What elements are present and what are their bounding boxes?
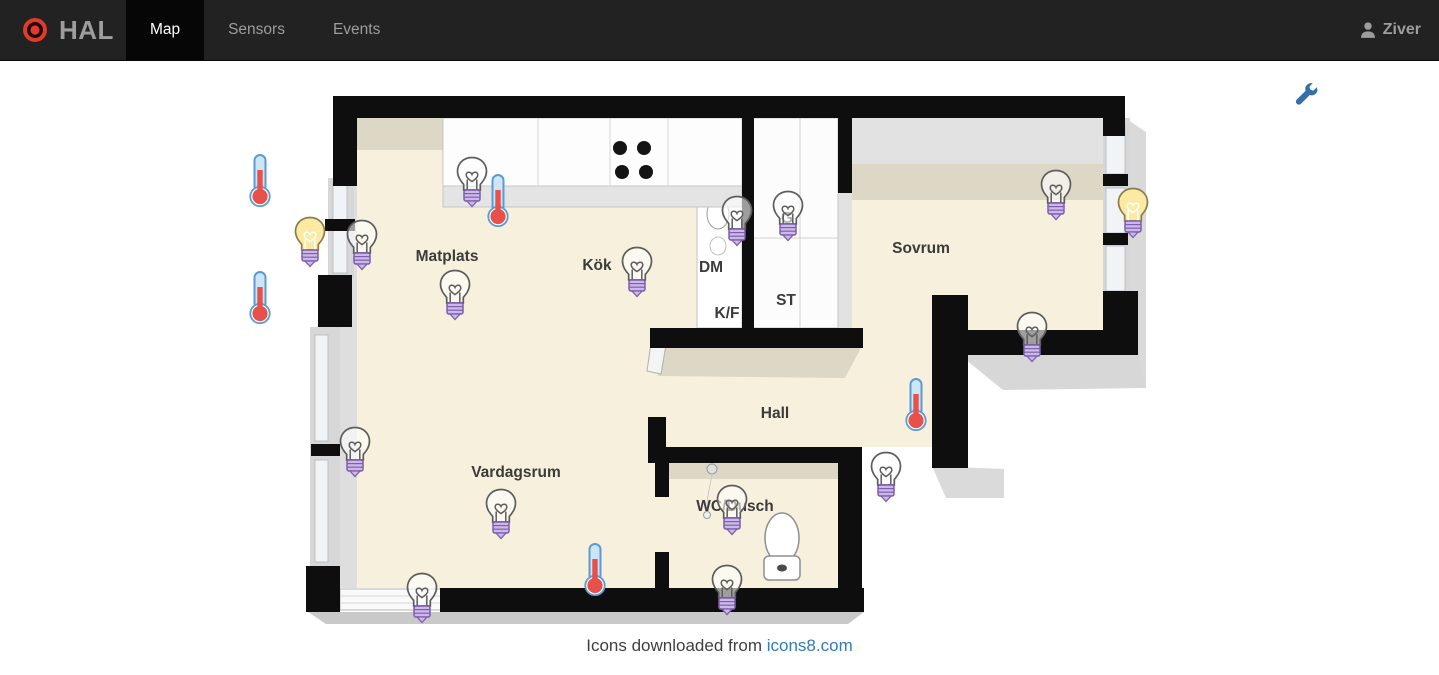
light-bulb-off-icon[interactable] (708, 562, 746, 623)
light-bulb-off-icon[interactable] (453, 154, 491, 215)
thermometer-icon[interactable] (248, 270, 272, 329)
light-bulb-off-icon[interactable] (1013, 309, 1051, 370)
room-label-dm: DM (699, 259, 723, 277)
settings-wrench-icon[interactable] (1294, 82, 1320, 113)
light-bulb-off-icon[interactable] (343, 217, 381, 278)
attribution: Icons downloaded from icons8.com (0, 636, 1439, 656)
tab-events[interactable]: Events (309, 0, 404, 60)
room-label-k-f: K/F (715, 305, 740, 323)
room-label-st: ST (776, 292, 796, 310)
user-menu[interactable]: Ziver (1359, 0, 1439, 60)
person-icon (1359, 21, 1377, 39)
light-bulb-off-icon[interactable] (718, 193, 756, 254)
light-bulb-off-icon[interactable] (618, 244, 656, 305)
attribution-text: Icons downloaded from (586, 636, 767, 655)
nav-tabs: MapSensorsEvents (126, 0, 404, 60)
light-bulb-off-icon[interactable] (1037, 167, 1075, 228)
light-bulb-off-icon[interactable] (713, 482, 751, 543)
light-bulb-off-icon[interactable] (867, 449, 905, 510)
light-bulb-off-icon[interactable] (482, 486, 520, 547)
thermometer-icon[interactable] (583, 542, 607, 601)
brand-title: HAL (59, 15, 114, 46)
floorplan-map: MatplatsKökDMK/FSTGSovrumHallVardagsrumW… (0, 0, 1439, 675)
hal-logo-icon (20, 15, 50, 45)
room-label-vardagsrum: Vardagsrum (471, 464, 561, 482)
tab-map[interactable]: Map (126, 0, 204, 60)
room-label-k-k: Kök (582, 257, 611, 275)
room-label-matplats: Matplats (416, 248, 479, 266)
room-label-hall: Hall (761, 405, 789, 423)
light-bulb-off-icon[interactable] (436, 267, 474, 328)
light-bulb-off-icon[interactable] (403, 570, 441, 631)
user-name: Ziver (1383, 21, 1421, 39)
thermometer-icon[interactable] (904, 377, 928, 436)
thermometer-icon[interactable] (248, 153, 272, 212)
light-bulb-on-icon[interactable] (291, 214, 329, 275)
light-bulb-on-icon[interactable] (1114, 185, 1152, 246)
icons8-link[interactable]: icons8.com (767, 636, 853, 655)
navbar: HAL MapSensorsEvents Ziver (0, 0, 1439, 61)
light-bulb-off-icon[interactable] (336, 424, 374, 485)
navbar-brand[interactable]: HAL (0, 0, 126, 60)
light-bulb-off-icon[interactable] (769, 188, 807, 249)
room-label-sovrum: Sovrum (892, 240, 950, 258)
tab-sensors[interactable]: Sensors (204, 0, 309, 60)
